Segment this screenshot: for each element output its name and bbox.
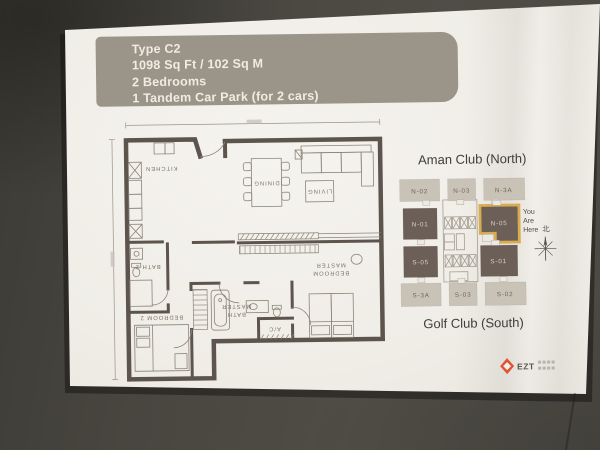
room-label-master-bath-2: BATH — [227, 311, 246, 317]
room-label-ac: A/C — [268, 325, 281, 331]
north-title: Aman Club (North) — [418, 151, 527, 168]
ezt-logo: EZT — [498, 354, 560, 377]
room-label-dining: DINING — [253, 179, 279, 185]
you-are-here-label: You Are Here — [523, 209, 539, 234]
poster-content: Type C2 1098 Sq Ft / 102 Sq M 2 Bedrooms… — [0, 0, 600, 450]
photo-scene: Type C2 1098 Sq Ft / 102 Sq M 2 Bedrooms… — [0, 0, 600, 450]
poster-paper: Type C2 1098 Sq Ft / 102 Sq M 2 Bedrooms… — [0, 0, 600, 450]
logo-text: EZT — [517, 361, 535, 371]
room-label-master-bath-1: MASTER — [221, 303, 251, 309]
unit-label-n05: N-05 — [491, 220, 508, 227]
compass-north-char: 北 — [542, 225, 550, 234]
unit-label-n3a: N-3A — [495, 187, 513, 194]
unit-label-n03: N-03 — [453, 188, 470, 195]
room-label-master-bedroom-2: BEDROOM — [312, 269, 349, 276]
unit-label-s05: S-05 — [412, 259, 429, 266]
logo-tagline-marks — [538, 360, 555, 369]
unit-label-s03: S-03 — [455, 292, 472, 299]
you-are-here-line3: Here — [523, 227, 538, 234]
key-plan: Aman Club (North) — [392, 140, 565, 342]
room-label-living: LIVING — [307, 188, 332, 194]
unit-label-s02: S-02 — [497, 291, 514, 298]
room-label-bedroom2: BEDROOM 2 — [139, 314, 183, 321]
you-are-here-line1: You — [523, 209, 535, 216]
logo-diamond-icon — [500, 358, 514, 374]
south-title: Golf Club (South) — [423, 315, 524, 331]
unit-label-s01: S-01 — [490, 258, 507, 265]
room-label-kitchen: KITCHEN — [145, 165, 178, 171]
unit-label-n01: N-01 — [412, 221, 429, 228]
unit-label-s3a: S-3A — [412, 292, 429, 299]
room-label-bath2: BATH 2 — [135, 263, 161, 269]
you-are-here-line2: Are — [523, 218, 534, 225]
spec-header-box: Type C2 1098 Sq Ft / 102 Sq M 2 Bedrooms… — [95, 32, 458, 107]
compass-icon — [534, 236, 556, 260]
room-label-master-bedroom-1: MASTER — [316, 261, 346, 267]
floor-plan: KITCHEN DINING LIVING BATH 2 BEDROOM 2 M… — [104, 109, 408, 403]
furniture — [128, 140, 376, 371]
spec-line-carpark: 1 Tandem Car Park (for 2 cars) — [132, 86, 458, 107]
outer-walls — [126, 137, 383, 380]
unit-label-n02: N-02 — [411, 188, 428, 195]
